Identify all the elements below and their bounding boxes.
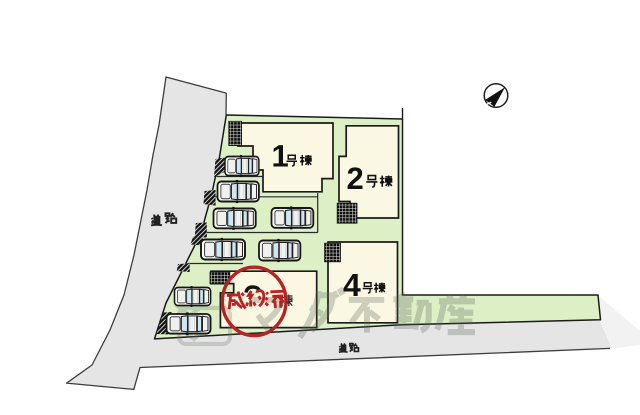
svg-text:1: 1 bbox=[272, 139, 289, 174]
svg-text:2: 2 bbox=[347, 161, 364, 196]
